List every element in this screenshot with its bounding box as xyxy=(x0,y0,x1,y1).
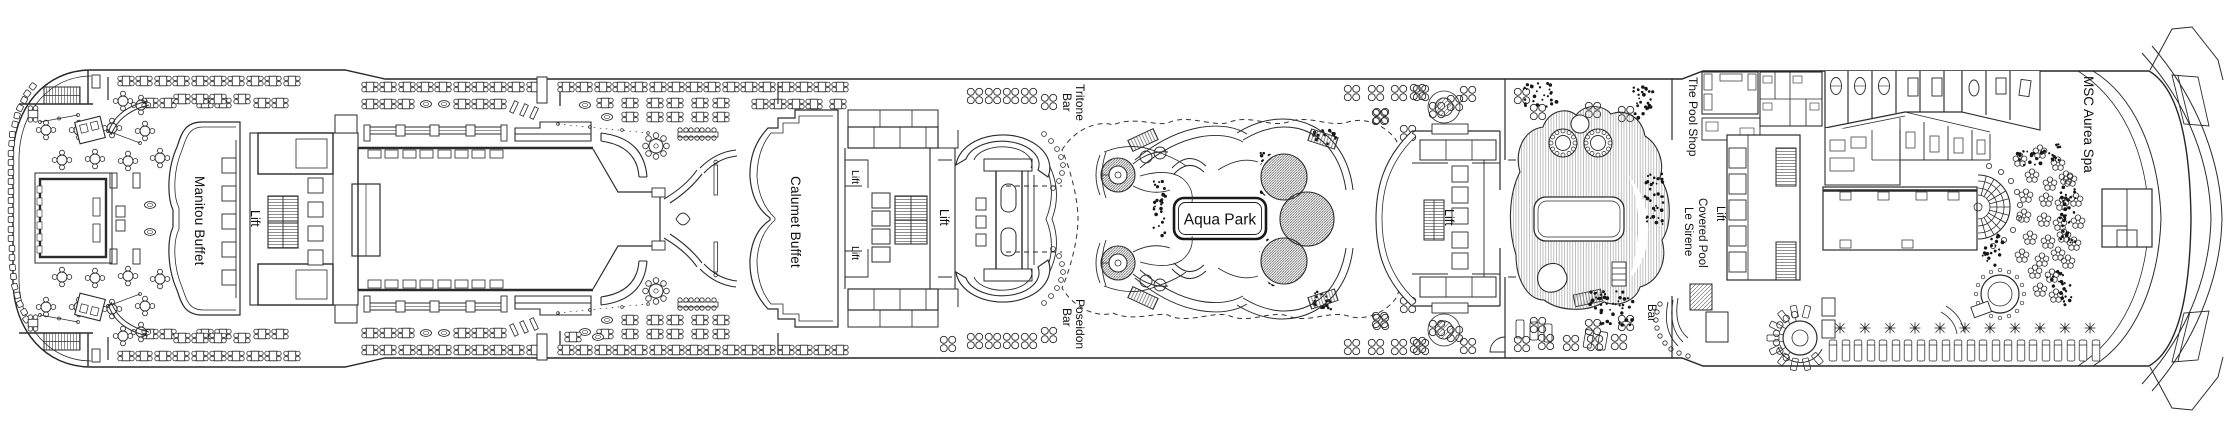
svg-text:Covered Pool: Covered Pool xyxy=(1696,198,1708,268)
svg-text:Lift: Lift xyxy=(849,170,861,184)
svg-text:Calumet Buffet: Calumet Buffet xyxy=(788,176,803,268)
svg-text:Aqua Park: Aqua Park xyxy=(1184,212,1257,229)
svg-text:Lift: Lift xyxy=(937,209,951,226)
svg-text:Bar: Bar xyxy=(1060,93,1074,112)
svg-text:Lift: Lift xyxy=(248,210,262,227)
svg-text:Bar: Bar xyxy=(1060,308,1074,327)
svg-text:MSC Aurea Spa: MSC Aurea Spa xyxy=(2081,76,2096,173)
svg-text:Lift: Lift xyxy=(1714,206,1726,222)
svg-text:Manitou Buffet: Manitou Buffet xyxy=(192,176,207,266)
svg-text:Lift: Lift xyxy=(1442,209,1456,226)
svg-text:Lift: Lift xyxy=(849,246,861,260)
svg-text:Tritone: Tritone xyxy=(1073,84,1087,121)
svg-text:Le Sirene: Le Sirene xyxy=(1682,207,1694,256)
svg-text:The Pool Shop: The Pool Shop xyxy=(1686,77,1700,157)
